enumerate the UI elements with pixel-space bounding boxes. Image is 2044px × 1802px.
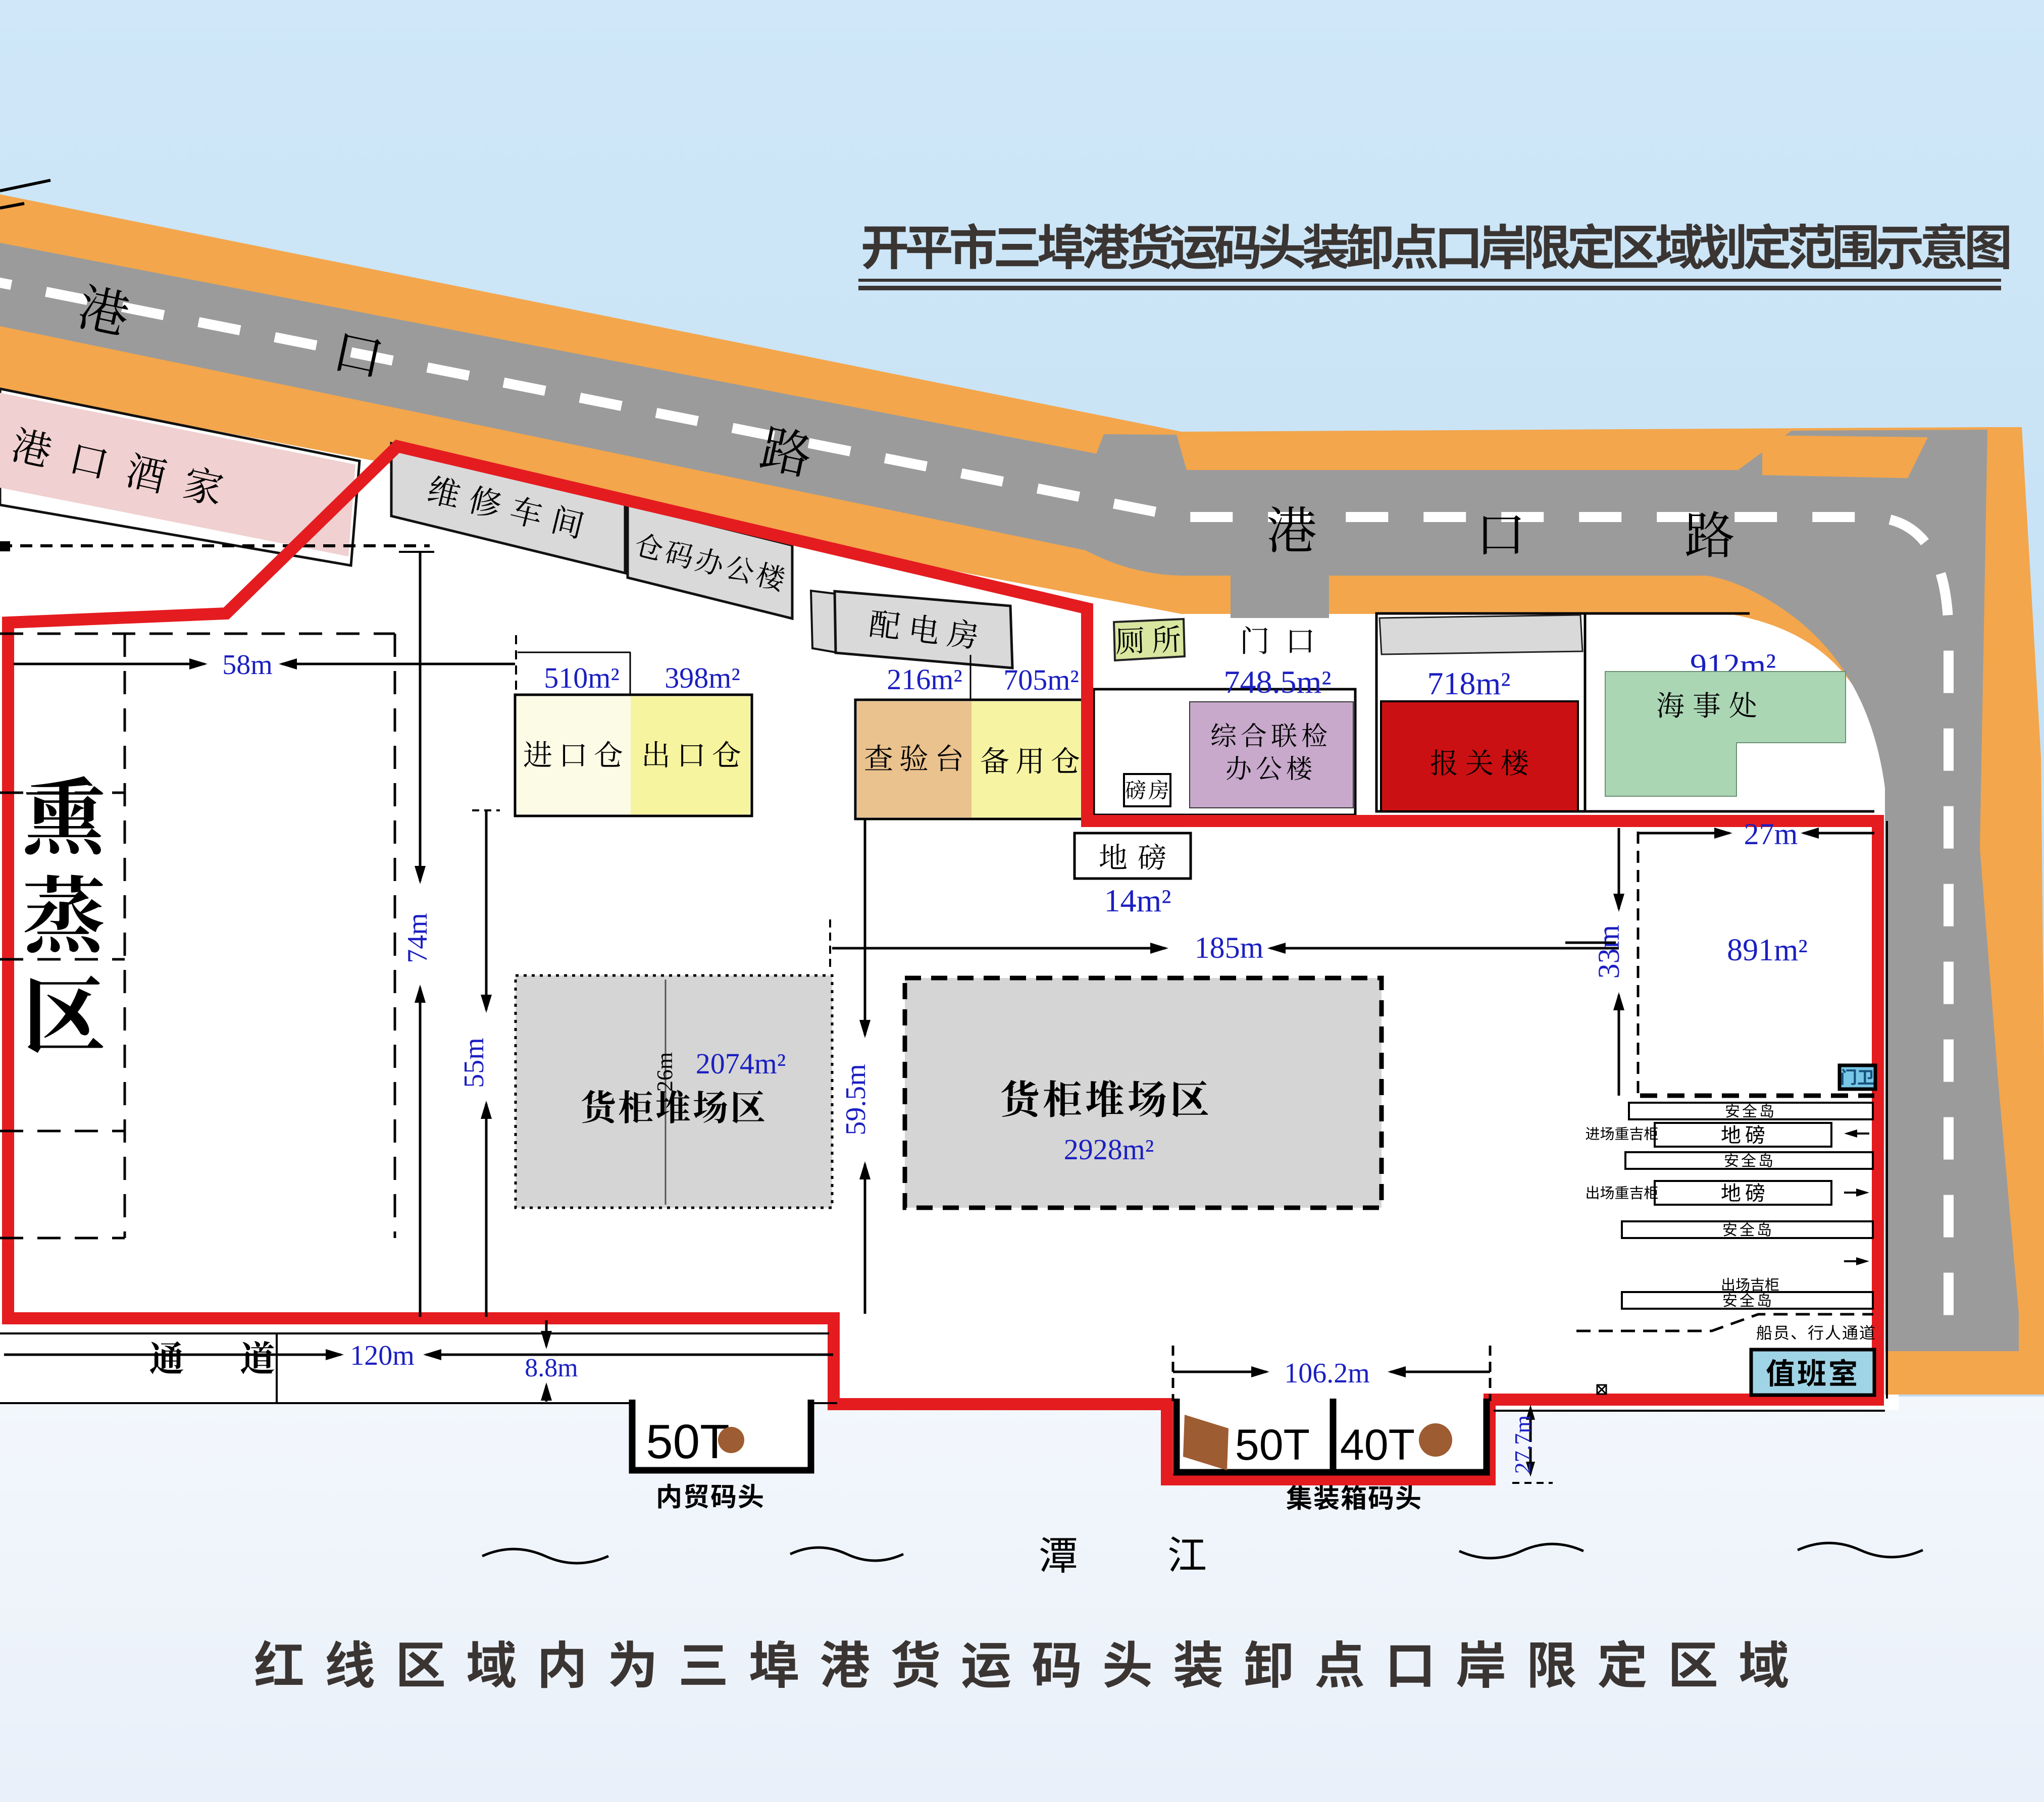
svg-text:40T: 40T bbox=[1340, 1421, 1415, 1469]
svg-text:55m: 55m bbox=[458, 1038, 490, 1088]
svg-text:106.2m: 106.2m bbox=[1284, 1358, 1370, 1389]
svg-text:50T: 50T bbox=[646, 1415, 729, 1469]
svg-text:891m²: 891m² bbox=[1727, 933, 1808, 967]
svg-text:14m²: 14m² bbox=[1104, 883, 1171, 918]
svg-text:59.5m: 59.5m bbox=[840, 1064, 872, 1136]
svg-text:216m²: 216m² bbox=[887, 663, 962, 696]
svg-text:185m: 185m bbox=[1195, 931, 1264, 964]
svg-text:27m: 27m bbox=[1744, 817, 1798, 851]
svg-text:718m²: 718m² bbox=[1427, 665, 1511, 701]
svg-text:58m: 58m bbox=[222, 649, 273, 681]
svg-text:33m: 33m bbox=[1592, 925, 1625, 979]
svg-text:50T: 50T bbox=[1235, 1421, 1310, 1469]
svg-text:26m: 26m bbox=[652, 1052, 677, 1092]
svg-text:398m²: 398m² bbox=[665, 661, 740, 694]
svg-text:27.7m: 27.7m bbox=[1510, 1415, 1536, 1474]
svg-text:748.5m²: 748.5m² bbox=[1224, 664, 1332, 700]
svg-text:2074m²: 2074m² bbox=[696, 1047, 786, 1080]
svg-text:510m²: 510m² bbox=[544, 661, 620, 694]
svg-text:2928m²: 2928m² bbox=[1064, 1133, 1154, 1166]
svg-text:120m: 120m bbox=[350, 1340, 415, 1371]
svg-text:705m²: 705m² bbox=[1003, 663, 1079, 696]
svg-text:8.8m: 8.8m bbox=[525, 1354, 578, 1382]
svg-text:74m: 74m bbox=[402, 913, 433, 963]
